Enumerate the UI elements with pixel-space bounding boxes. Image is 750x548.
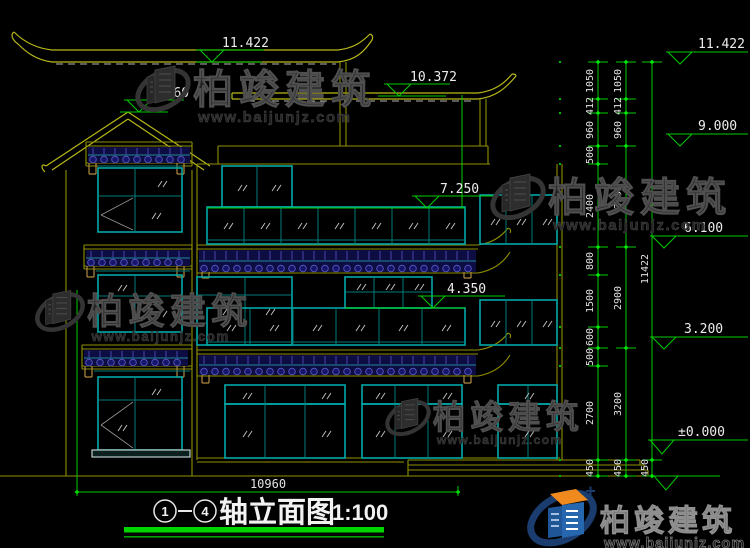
tile-scallop (143, 259, 150, 266)
marker-0000: ±0.000 (648, 425, 748, 490)
marker-11422-right: 11.422 (666, 37, 748, 64)
tile-scallop (267, 368, 274, 375)
tile-scallop (465, 265, 472, 272)
tile-scallop (366, 265, 373, 272)
level-label: 11.422 (698, 37, 745, 52)
tile-scallop (421, 265, 428, 272)
tile-scallop (201, 368, 208, 375)
tile-scallop (178, 156, 185, 163)
dim-extension-dot (559, 112, 561, 114)
dim-total-height: 11422 (640, 254, 651, 284)
dim-value: 500 (585, 348, 596, 366)
tile-scallop (86, 359, 93, 366)
tile-scallop (432, 368, 439, 375)
watermark-brand: 柏竣建筑 (433, 399, 584, 436)
window-sill (92, 450, 190, 457)
tile-scallop (366, 368, 373, 375)
watermark-bottom: 柏竣建筑 www.baijunjz.com (382, 395, 584, 447)
glass-slash-mark (399, 325, 408, 331)
tile-scallop (234, 265, 241, 272)
marker-7250: 7.250 (207, 182, 498, 208)
tile-scallop (311, 265, 318, 272)
glass-slash-mark (491, 321, 500, 327)
tile-scallop (123, 156, 130, 163)
glass-slash-mark (376, 393, 385, 399)
glass-slash-mark (243, 393, 252, 399)
tile-scallop (399, 265, 406, 272)
tile-scallop (156, 156, 163, 163)
dim-tick (596, 364, 601, 369)
dim-tick (596, 273, 601, 278)
drawing-title: 轴立面图 (219, 495, 335, 529)
level-label: ±0.000 (678, 425, 725, 440)
watermark-logo-icon (486, 170, 550, 225)
glass-slash-mark (322, 393, 331, 399)
level-label: 4.350 (447, 282, 486, 297)
dim-tick (596, 245, 601, 250)
glass-slash-mark (409, 223, 418, 229)
dim-tick (596, 325, 601, 330)
tile-scallop (300, 368, 307, 375)
dim-extension-dot (559, 145, 561, 147)
dim-value: 960 (585, 121, 596, 139)
marker-9000: 9.000 (666, 119, 748, 146)
level-label: 10.372 (410, 70, 457, 85)
glass-slash-mark (335, 223, 344, 229)
tile-scallop (165, 259, 172, 266)
elevation-drawing: 11.422 9.960 10.372 7.250 4.350 1050 412… (0, 0, 750, 548)
glass-slash-mark (491, 219, 500, 225)
tile-scallop (134, 156, 141, 163)
tile-scallop (399, 368, 406, 375)
dim-extension-dot (559, 163, 561, 165)
tile-scallop (355, 368, 362, 375)
tile-scallop (99, 259, 106, 266)
tile-scallop (174, 359, 181, 366)
dim-extension-dot (559, 347, 561, 349)
glass-slash-mark (152, 389, 161, 395)
tile-scallop (119, 359, 126, 366)
glass-slash-mark (238, 185, 247, 191)
glass-slash-mark (442, 325, 451, 331)
tile-scallop (201, 265, 208, 272)
tile-scallop (421, 368, 428, 375)
dim-tick (596, 474, 601, 479)
tile-scallop (432, 265, 439, 272)
watermark-brand: 柏竣建筑 (193, 68, 377, 112)
dim-tick (596, 162, 601, 167)
glass-slash-mark (272, 185, 281, 191)
tile-scallop (278, 368, 285, 375)
glass-slash-mark (224, 223, 233, 229)
tile-scallop (300, 265, 307, 272)
tile-scallop (388, 265, 395, 272)
tile-scallop (289, 368, 296, 375)
axis-end-number: 4 (201, 504, 209, 519)
tile-scallop (154, 259, 161, 266)
tile-scallop (333, 368, 340, 375)
level-label: 3.200 (684, 322, 723, 337)
dim-value: 412 (585, 97, 596, 115)
tile-scallop (454, 265, 461, 272)
watermark-left: 柏竣建筑 www.baijunjz.com (31, 287, 252, 344)
main-roof (12, 32, 373, 64)
dim-extension-dot (559, 365, 561, 367)
watermark-right: 柏竣建筑 www.baijunjz.com (486, 170, 732, 234)
tile-scallop (333, 265, 340, 272)
glass-slash-mark (266, 309, 275, 315)
axis-start-number: 1 (161, 504, 168, 519)
dim-tick (624, 111, 629, 116)
dim-value: 450 (585, 459, 596, 477)
marker-11422-left: 11.422 (196, 36, 269, 62)
title-underline-thin (124, 536, 384, 538)
glass-slash-mark (357, 284, 366, 290)
tile-scallop (108, 359, 115, 366)
tile-scallop (454, 368, 461, 375)
glass-slash-mark (517, 321, 526, 327)
dim-value: 2700 (585, 401, 596, 425)
marker-3200: 3.200 (650, 322, 748, 349)
dim-value: 1050 (613, 69, 624, 93)
dim-value: 500 (585, 146, 596, 164)
title-block: 1 4 轴立面图 1:100 (124, 495, 388, 538)
cad-canvas: 11.422 9.960 10.372 7.250 4.350 1050 412… (0, 0, 750, 548)
tile-scallop (443, 368, 450, 375)
dim-value: 2900 (613, 286, 624, 310)
tile-scallop (88, 259, 95, 266)
glass-slash-mark (356, 325, 365, 331)
tile-scallop (344, 368, 351, 375)
dim-tick (596, 458, 601, 463)
glass-slash-mark (372, 223, 381, 229)
dim-extension-dot (559, 246, 561, 248)
dim-tick (624, 245, 629, 250)
dim-extension-dot (559, 98, 561, 100)
tile-scallop (377, 265, 384, 272)
tile-scallop (256, 368, 263, 375)
glass-slash-mark (270, 325, 279, 331)
watermark-brand: 柏竣建筑 (87, 291, 253, 332)
glass-slash-mark (386, 284, 395, 290)
dim-tick (624, 60, 629, 65)
watermark-logo-icon (31, 287, 88, 337)
tile-scallop (112, 156, 119, 163)
dim-tick (596, 111, 601, 116)
tile-scallop (465, 368, 472, 375)
glass-slash-mark (243, 431, 252, 437)
level-label: 11.422 (222, 36, 269, 51)
level-label: 9.000 (698, 119, 737, 134)
tile-scallop (163, 359, 170, 366)
elevation-markers-right: 11.422 9.000 6.100 3.200 ±0.000 (648, 37, 748, 490)
dim-value: 3200 (613, 392, 624, 416)
tile-scallop (223, 265, 230, 272)
tile-scallop (410, 265, 417, 272)
tile-scallop (322, 265, 329, 272)
tile-scallop (278, 265, 285, 272)
dim-extension-dot (559, 459, 561, 461)
dim-value: 800 (585, 252, 596, 270)
dim-texts-middle: 1050 412 960 2900 2900 3200 450 (613, 69, 624, 477)
tile-scallop (311, 368, 318, 375)
tile-scallop (152, 359, 159, 366)
watermark-url: www.baijunjz.com (436, 433, 563, 447)
tile-scallop (256, 265, 263, 272)
level-label: 7.250 (440, 182, 479, 197)
tile-scallop (223, 368, 230, 375)
watermark-logo-icon (131, 62, 195, 117)
watermark-url: www.baijunjz.com (91, 329, 230, 344)
brand-logo-name: 柏竣建筑 (600, 504, 736, 538)
dim-tick (624, 144, 629, 149)
watermark-top: 柏竣建筑 www.baijunjz.com (131, 62, 377, 126)
tile-scallop (101, 156, 108, 163)
glass-slash-mark (376, 431, 385, 437)
tile-scallop (130, 359, 137, 366)
drawing-scale: 1:100 (332, 500, 388, 525)
dim-texts-inner: 1050 412 960 500 2400 800 1500 600 500 2… (585, 69, 596, 477)
tile-scallop (212, 265, 219, 272)
tile-scallop (377, 368, 384, 375)
glass-slash-mark (313, 325, 322, 331)
glass-slash-mark (322, 431, 331, 437)
tile-scallop (245, 368, 252, 375)
dim-tick (596, 144, 601, 149)
tile-scallop (322, 368, 329, 375)
tile-scallop (234, 368, 241, 375)
dim-extension-dot (559, 326, 561, 328)
tile-scallop (289, 265, 296, 272)
glass-slash-mark (415, 284, 424, 290)
tile-scallop (90, 156, 97, 163)
tile-scallop (145, 156, 152, 163)
title-underline (124, 527, 384, 533)
tile-scallop (245, 265, 252, 272)
dim-tick (624, 458, 629, 463)
brand-logo-icon (522, 483, 602, 548)
watermark-url: www.baijunjz.com (552, 217, 706, 234)
dim-tick (624, 346, 629, 351)
dim-value: 600 (585, 328, 596, 346)
dim-total-width: 10960 (250, 477, 286, 491)
dim-value: 960 (613, 121, 624, 139)
tile-scallop (121, 259, 128, 266)
dim-tick (596, 97, 601, 102)
dim-value: 450 (613, 459, 624, 477)
watermark-brand: 柏竣建筑 (548, 176, 732, 220)
dim-value: 1050 (585, 69, 596, 93)
glass-slash-mark (543, 321, 552, 327)
marker-4350: 4.350 (345, 282, 505, 308)
tile-scallop (388, 368, 395, 375)
tile-scallop (110, 259, 117, 266)
brand-logo: 柏竣建筑 www.baijunjz.com (522, 483, 745, 548)
dim-value: 1500 (585, 289, 596, 313)
tile-scallop (141, 359, 148, 366)
dim-extension-dot (559, 475, 561, 477)
tile-scallop (176, 259, 183, 266)
dim-tick (650, 60, 655, 65)
dim-extension-dot (559, 274, 561, 276)
tile-scallop (267, 265, 274, 272)
dim-value: 450 (640, 459, 651, 477)
ground-and-steps (0, 458, 652, 476)
glass-slash-mark (118, 425, 127, 431)
glass-slash-mark (152, 213, 161, 219)
brand-logo-url: www.baijunjz.com (603, 536, 745, 548)
tile-scallop (443, 265, 450, 272)
tile-scallop (97, 359, 104, 366)
dim-value: 412 (613, 97, 624, 115)
dim-texts-outer: 11422 450 (640, 254, 651, 477)
tile-scallop (167, 156, 174, 163)
dim-tick (624, 474, 629, 479)
tile-scallop (132, 259, 139, 266)
dim-tick (624, 97, 629, 102)
watermark-url: www.baijunjz.com (197, 109, 351, 126)
glass-slash-mark (261, 223, 270, 229)
glass-slash-mark (517, 219, 526, 225)
dim-extension-dot (559, 61, 561, 63)
tile-scallop (410, 368, 417, 375)
tile-scallop (212, 368, 219, 375)
dim-tick (596, 60, 601, 65)
glass-slash-mark (298, 223, 307, 229)
tile-scallop (344, 265, 351, 272)
glass-slash-mark (158, 181, 167, 187)
glass-slash-mark (446, 223, 455, 229)
tile-scallop (355, 265, 362, 272)
watermark-logo-icon (382, 395, 434, 440)
dim-tick (596, 346, 601, 351)
